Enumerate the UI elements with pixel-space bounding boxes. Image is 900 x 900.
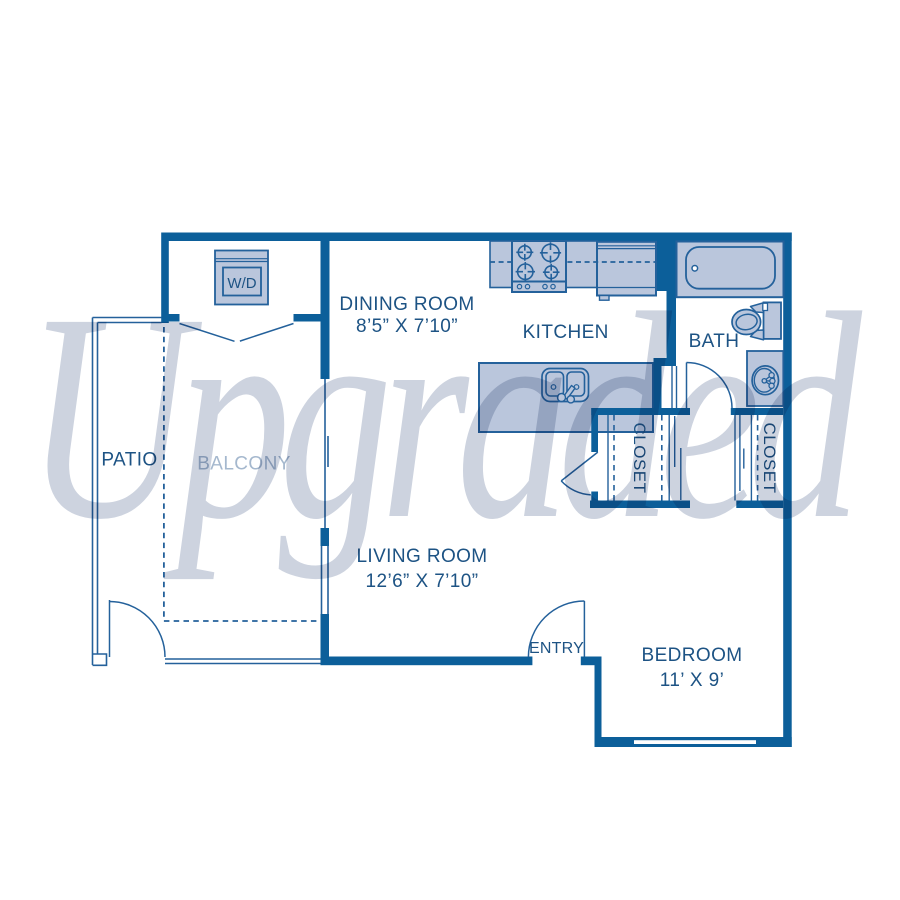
svg-text:BEDROOM: BEDROOM [642, 645, 743, 666]
svg-text:11’ X 9’: 11’ X 9’ [660, 670, 724, 691]
svg-text:ENTRY: ENTRY [529, 640, 584, 657]
